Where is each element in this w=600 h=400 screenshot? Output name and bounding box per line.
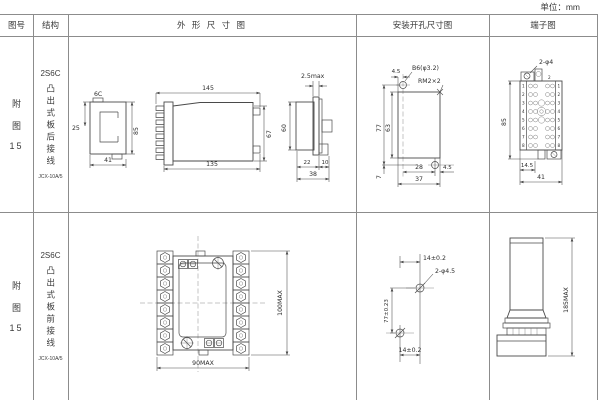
dim-label: 7 bbox=[376, 175, 383, 179]
dim-label: 10 bbox=[322, 160, 329, 166]
terminal-block: 2 1 2 3 4 5 6 7 8 1 2 3 4 5 6 7 8 bbox=[520, 69, 562, 159]
dim-label: 60 bbox=[281, 124, 288, 132]
terminal-drawing-rear-wiring: 2-φ4 2 1 2 3 4 5 6 7 8 1 2 3 4 5 6 7 bbox=[489, 36, 598, 212]
header-terminal: 端子图 bbox=[489, 14, 597, 36]
spec-sheet: 单位：mm 图号 结构 外 形 尺 寸 图 安装开孔尺寸图 端子图 附 图 15… bbox=[0, 0, 600, 400]
relay-model: 2S6C bbox=[40, 251, 60, 260]
terminal-contact-holes bbox=[529, 84, 555, 148]
terminal-pin-number: 4 bbox=[522, 109, 525, 114]
terminal-pin-number: 8 bbox=[522, 143, 525, 148]
terminal-pin-number: 3 bbox=[522, 101, 525, 106]
header-structure: 结构 bbox=[33, 14, 68, 36]
fig-char: 附 bbox=[12, 97, 21, 110]
relay-code: JCX-10A/5 bbox=[38, 174, 62, 180]
dim-label: 100MAX bbox=[277, 289, 284, 315]
structure-cell-row2: 2S6C 凸出式板前接线 JCX-10A/5 bbox=[33, 212, 68, 400]
hole-spec-label: 2-φ4.5 bbox=[435, 268, 455, 275]
dim-label: 90MAX bbox=[192, 360, 214, 367]
terminal-pin-number: 7 bbox=[557, 135, 560, 140]
mount-type: 凸出式板后接线 bbox=[46, 84, 55, 168]
front-view: 6C 25 85 41 bbox=[72, 91, 140, 168]
terminal-pin-number: 7 bbox=[522, 135, 525, 140]
hole-spec-label: 2-φ4 bbox=[539, 59, 553, 66]
dim-label: 28 bbox=[415, 164, 423, 171]
dim-label: 185MAX bbox=[563, 286, 570, 312]
dim-label: 67 bbox=[266, 130, 273, 138]
dim-label: 77 bbox=[376, 124, 383, 132]
terminal-pin-number: 4 bbox=[557, 109, 560, 114]
relay-side-view bbox=[497, 238, 550, 356]
fig-number: 15 bbox=[9, 323, 23, 333]
dim-label: 85 bbox=[133, 127, 140, 135]
dim-label: 145 bbox=[202, 85, 214, 92]
hole-spec-label: B6(φ3.2) bbox=[412, 65, 439, 72]
dim-label: 85 bbox=[501, 118, 508, 126]
terminal-drawing-front-wiring: 185MAX bbox=[489, 212, 598, 400]
unit-label: 单位：mm bbox=[540, 1, 580, 13]
header-outline: 外 形 尺 寸 图 bbox=[68, 14, 356, 36]
terminal-pin-number: 1 bbox=[557, 84, 560, 89]
relay-code: JCX-10A/5 bbox=[38, 356, 62, 362]
view-label: 6C bbox=[94, 91, 102, 98]
dim-label: 77±0.23 bbox=[384, 299, 390, 323]
terminal-pin-number: 6 bbox=[522, 126, 525, 131]
terminal-pin-number: 8 bbox=[557, 143, 560, 148]
dim-label: 38 bbox=[309, 171, 317, 178]
dim-label: 63 bbox=[385, 124, 392, 132]
outline-drawing-rear-wiring: 6C 25 85 41 145 bbox=[68, 36, 356, 212]
terminal-pin-number: 2 bbox=[557, 92, 560, 97]
dim-label: 37 bbox=[415, 176, 423, 183]
thread-spec-label: RM2×2 bbox=[418, 78, 441, 85]
fig-char: 图 bbox=[12, 119, 21, 132]
fig-no-cell-row2: 附 图 15 bbox=[0, 212, 33, 400]
dim-label: 14±0.2 bbox=[399, 347, 422, 354]
fig-char: 附 bbox=[12, 279, 21, 292]
header-fig-no: 图号 bbox=[0, 14, 33, 36]
dim-label: 14.5 bbox=[521, 163, 534, 169]
fig-number: 15 bbox=[9, 141, 23, 151]
dim-label: 41 bbox=[537, 174, 545, 181]
dim-label: 22 bbox=[304, 160, 311, 166]
install-drawing-rear-wiring: 4.5 B6(φ3.2) RM2×2 77 63 7 28 4.5 37 bbox=[356, 36, 489, 212]
install-drawing-front-wiring: 14±0.2 2-φ4.5 77±0.23 14±0.2 bbox=[356, 212, 489, 400]
relay-model: 2S6C bbox=[40, 69, 60, 78]
terminal-pin-number: 3 bbox=[557, 101, 560, 106]
dim-label: 4.5 bbox=[392, 69, 401, 75]
side-view: 145 135 67 bbox=[156, 85, 273, 172]
panel-mount-view: 2.5max 60 22 10 38 bbox=[281, 73, 332, 182]
dim-label: 41 bbox=[104, 157, 112, 164]
dim-label: 135 bbox=[206, 161, 218, 168]
outline-drawing-front-wiring: 100MAX 90MAX bbox=[68, 212, 356, 400]
terminal-pin-number: 1 bbox=[522, 84, 525, 89]
terminal-pin-number: 6 bbox=[557, 126, 560, 131]
dim-label: 14±0.2 bbox=[423, 255, 446, 262]
dim-label: 2.5max bbox=[301, 73, 325, 80]
terminal-pin-number: 5 bbox=[557, 118, 560, 123]
structure-cell-row1: 2S6C 凸出式板后接线 JCX-10A/5 bbox=[33, 36, 68, 212]
header-install: 安装开孔尺寸图 bbox=[356, 14, 489, 36]
terminal-pin-number: 5 bbox=[522, 118, 525, 123]
mount-type: 凸出式板前接线 bbox=[46, 266, 55, 350]
dim-label: 4.5 bbox=[443, 165, 452, 171]
dim-label: 25 bbox=[72, 125, 80, 132]
terminal-pin-number: 2 bbox=[522, 92, 525, 97]
fig-char: 图 bbox=[12, 301, 21, 314]
block-top-label: 2 bbox=[548, 75, 551, 80]
cutout-rect bbox=[398, 92, 440, 158]
fig-no-cell-row1: 附 图 15 bbox=[0, 36, 33, 212]
